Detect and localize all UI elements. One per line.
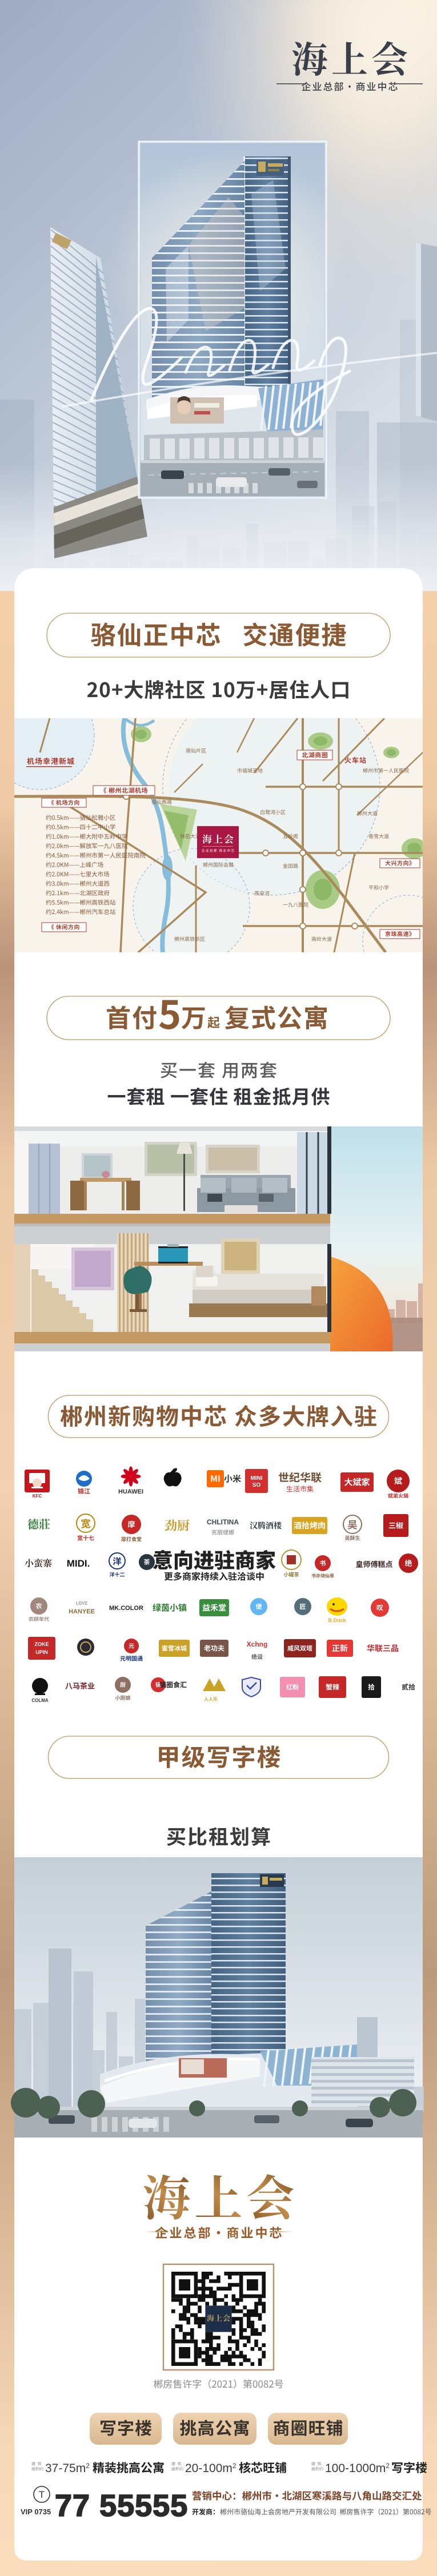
svg-text:Xchng: Xchng [247,1640,268,1648]
svg-text:MINI: MINI [250,1475,262,1482]
svg-text:UPIN: UPIN [35,1649,48,1655]
svg-text:ZOKE: ZOKE [34,1641,49,1647]
svg-text:77 55555: 77 55555 [55,2489,188,2523]
svg-text:37-75m2: 37-75m2 [45,2462,90,2475]
svg-text:T: T [39,2489,45,2500]
svg-text:CHLITINA: CHLITINA [207,1518,239,1526]
svg-text:MK.COLOR: MK.COLOR [109,1605,143,1612]
svg-text:HANYEE: HANYEE [69,1608,95,1615]
svg-text:B.Duck: B.Duck [328,1617,346,1623]
svg-text:VIP 0735: VIP 0735 [21,2507,51,2516]
svg-text:20-100m2: 20-100m2 [185,2462,236,2475]
svg-text:SO: SO [252,1482,261,1488]
svg-text:100-1000m2: 100-1000m2 [325,2462,390,2475]
svg-text:MIDI.: MIDI. [67,1558,90,1569]
svg-text:HUAWEI: HUAWEI [118,1488,143,1495]
svg-text:COLMA: COLMA [31,1698,49,1703]
svg-text:KFC: KFC [33,1494,42,1499]
